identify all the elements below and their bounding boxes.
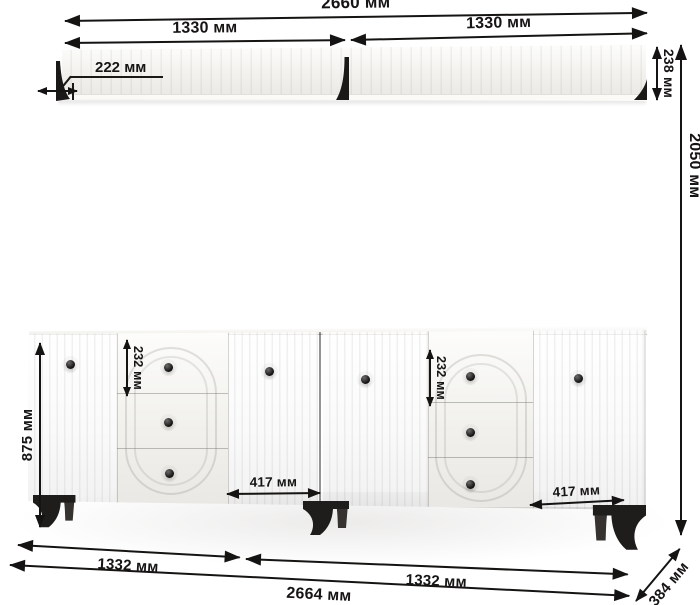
drawer-oval-inner-ring (444, 363, 518, 493)
cabinet-door-1 (28, 330, 117, 510)
dim-label: 232 мм (434, 350, 448, 406)
dim-label: 417 мм (227, 474, 320, 490)
arrowhead-right-icon (612, 568, 628, 581)
cabinet-leg-center-icon (303, 501, 355, 539)
drawer-knob (466, 428, 475, 437)
dim-shelf-depth-label: 222 мм (95, 59, 146, 76)
drawer-oval-decor-right (435, 354, 527, 502)
arrowhead-right-icon (224, 551, 241, 564)
dim-shelf-right-width: 1330 мм (351, 33, 647, 40)
drawer-knob (466, 372, 475, 381)
drawer-knob (164, 418, 173, 427)
dim-line (680, 45, 683, 535)
section-seam (117, 330, 118, 510)
leader-underline (70, 76, 163, 78)
arrowhead-right-icon (614, 589, 631, 602)
arrowhead-down-icon (675, 520, 687, 536)
furniture-dimension-diagram: 2660 мм 1330 мм 1330 мм 238 мм 222 мм (0, 0, 700, 605)
dim-shelf-left-width: 1330 мм (65, 40, 345, 43)
dim-label: 232 мм (131, 340, 145, 396)
dim-label: 875 мм (19, 343, 36, 527)
wall-shelf (62, 45, 646, 101)
cabinet-side-edge (641, 330, 646, 510)
door-knob (361, 375, 370, 384)
arrowhead-right-icon (308, 488, 321, 498)
shelf-bracket-right-icon (634, 79, 647, 100)
dim-door-width-left: 417 мм (227, 493, 320, 494)
arrowhead-right-icon (612, 495, 626, 506)
door-knob (66, 360, 75, 369)
door-knob (574, 374, 583, 383)
drawer-knob (466, 480, 475, 489)
arrowhead-down-icon (426, 397, 434, 407)
drawer-knob (165, 469, 174, 478)
arrowhead-down-icon (123, 387, 131, 397)
arrowhead-right-icon (68, 87, 78, 95)
cabinet-front (28, 330, 646, 510)
dim-line (39, 343, 41, 527)
dim-label: 2050 мм (685, 133, 700, 198)
arrowhead-up-icon (35, 342, 45, 355)
dim-line (65, 39, 345, 44)
section-seam (533, 330, 534, 510)
shelf-shadow (58, 100, 646, 106)
cabinet-leg-right-icon (586, 505, 646, 555)
door-knob (265, 367, 274, 376)
drawer-knob (164, 363, 173, 372)
cabinet-door-3 (323, 330, 428, 510)
dim-label: 1330 мм (65, 18, 345, 39)
shelf-bracket-center-icon (336, 57, 349, 100)
